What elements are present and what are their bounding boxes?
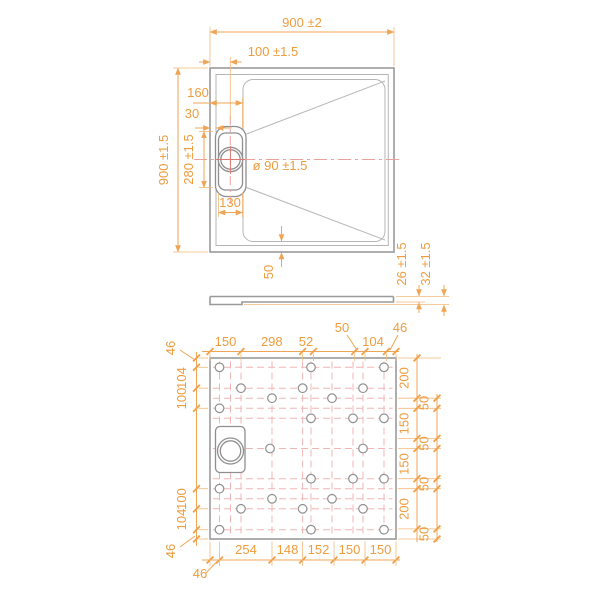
foot-marker	[380, 414, 389, 423]
foot-marker	[266, 444, 275, 453]
dim-bottom-150-a: 150	[339, 542, 361, 557]
foot-marker	[215, 525, 224, 534]
foot-marker	[307, 363, 316, 372]
foot-marker	[215, 404, 224, 413]
dim-overall-width: 900 ±2	[282, 15, 322, 30]
dim-bottom-46: 46	[193, 566, 207, 581]
dim-right-50-a: 50	[417, 396, 432, 410]
dim-right-50-b: 50	[417, 436, 432, 450]
dim-bottom-inset: 50	[261, 265, 276, 279]
dim-bottom-150-b: 150	[370, 542, 392, 557]
dim-bottom-254: 254	[235, 542, 257, 557]
foot-marker	[268, 495, 277, 504]
dim-bottom-148: 148	[277, 542, 299, 557]
foot-marker	[237, 505, 246, 514]
side-profile	[210, 297, 394, 305]
dim-left-100-bottom: 100	[174, 488, 189, 510]
dim-left-46-top: 46	[163, 341, 178, 355]
foot-marker	[215, 484, 224, 493]
dim-top-50: 50	[335, 320, 349, 335]
dim-right-150-b: 150	[397, 453, 412, 475]
foot-marker	[359, 384, 368, 393]
foot-marker	[268, 394, 277, 403]
foot-marker	[359, 505, 368, 514]
dim-right-200-bottom: 200	[397, 498, 412, 520]
foot-marker	[349, 414, 358, 423]
bottom-view-dimensions: 150 298 52 50 104 46	[163, 320, 441, 581]
foot-marker	[380, 525, 389, 534]
dim-left-104-bottom: 104	[174, 509, 189, 531]
technical-drawing-shower-tray: 900 ±2 100 ±1.5 160 30 900 ±1.5 280 ±	[0, 0, 600, 600]
dim-drain-diameter: ø 90 ±1.5	[253, 158, 308, 173]
dim-top-46: 46	[393, 320, 407, 335]
foot-marker	[380, 474, 389, 483]
floor-slope-line-top	[247, 81, 386, 134]
dim-drain-width: 130	[219, 195, 241, 210]
dim-right-150-a: 150	[397, 413, 412, 435]
foot-marker	[215, 363, 224, 372]
dim-rim-width: 30	[185, 106, 199, 121]
dim-tray-thickness: 26 ±1.5	[394, 242, 409, 285]
foot-marker	[328, 394, 337, 403]
dim-left-100-top: 100	[174, 388, 189, 410]
dim-top-104: 104	[362, 334, 384, 349]
top-view-dimensions: 900 ±2 100 ±1.5 160 30 900 ±1.5 280 ±	[156, 15, 394, 279]
dim-right-50-d: 50	[417, 527, 432, 541]
underside-drain	[216, 427, 246, 473]
dim-recess-height: 280 ±1.5	[181, 134, 196, 185]
dim-top-298: 298	[261, 334, 283, 349]
dim-top-150: 150	[215, 334, 237, 349]
floor-slope-line-bottom	[247, 188, 386, 241]
foot-marker	[380, 363, 389, 372]
dim-overall-height: 900 ±1.5	[156, 135, 171, 186]
dim-drain-edge-offset: 160	[187, 85, 209, 100]
foot-marker	[298, 384, 307, 393]
foot-marker	[307, 414, 316, 423]
top-view: 900 ±2 100 ±1.5 160 30 900 ±1.5 280 ±	[156, 15, 400, 279]
foot-marker	[307, 474, 316, 483]
dim-drain-center-offset: 100 ±1.5	[248, 44, 299, 59]
dim-right-50-c: 50	[417, 477, 432, 491]
drain-outlet-inner	[220, 441, 240, 461]
dim-top-52: 52	[299, 334, 313, 349]
dim-left-46-bottom: 46	[163, 544, 178, 558]
foot-marker	[237, 384, 246, 393]
dim-tray-total-height: 32 ±1.5	[418, 242, 433, 285]
foot-marker	[328, 495, 337, 504]
foot-marker	[307, 525, 316, 534]
dim-left-104-top: 104	[174, 367, 189, 389]
foot-marker	[298, 505, 307, 514]
dim-right-200-top: 200	[397, 367, 412, 389]
bottom-view: 150 298 52 50 104 46	[163, 320, 441, 581]
side-view: 26 ±1.5 32 ±1.5	[210, 242, 449, 316]
foot-marker	[349, 474, 358, 483]
foot-marker	[359, 444, 368, 453]
dim-bottom-152: 152	[308, 542, 330, 557]
